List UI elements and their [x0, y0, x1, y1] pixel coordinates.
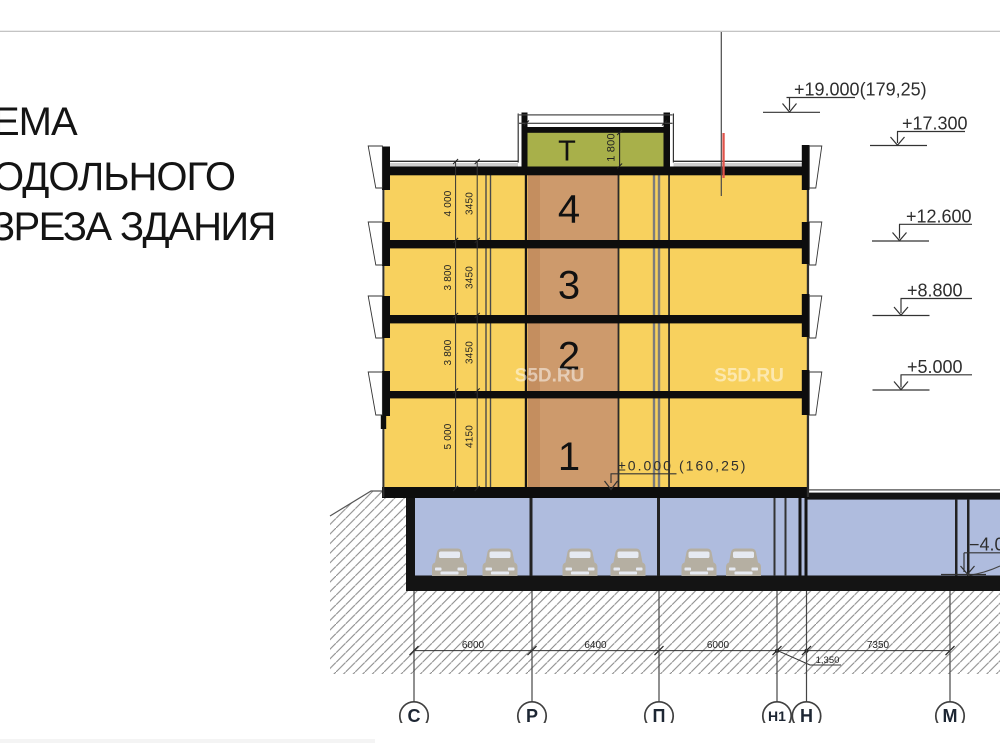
- svg-text:5 000: 5 000: [443, 423, 454, 449]
- svg-text:−4.000: −4.000: [969, 535, 1000, 555]
- svg-text:6000: 6000: [462, 640, 485, 651]
- svg-text:6000: 6000: [707, 640, 730, 651]
- svg-text:7350: 7350: [867, 640, 890, 651]
- svg-text:1 800: 1 800: [606, 133, 618, 162]
- svg-text:3: 3: [558, 264, 580, 308]
- svg-text:3 800: 3 800: [443, 264, 454, 290]
- svg-text:1: 1: [558, 435, 580, 479]
- svg-text:Т: Т: [558, 136, 576, 168]
- svg-text:3 800: 3 800: [443, 339, 454, 365]
- svg-text:Н1: Н1: [768, 708, 786, 724]
- svg-text:ЕМА: ЕМА: [0, 100, 78, 144]
- svg-text:4150: 4150: [465, 425, 476, 448]
- svg-text:4: 4: [558, 188, 580, 232]
- svg-text:6400: 6400: [584, 640, 607, 651]
- svg-text:+19.000(179,25): +19.000(179,25): [794, 80, 927, 100]
- svg-text:S5D.RU: S5D.RU: [515, 366, 585, 387]
- svg-text:+8.800: +8.800: [907, 281, 963, 301]
- svg-text:ОДОЛЬНОГО: ОДОЛЬНОГО: [0, 155, 235, 199]
- svg-text:3450: 3450: [465, 341, 476, 364]
- svg-text:±0.000 (160,25): ±0.000 (160,25): [618, 458, 748, 474]
- svg-text:3450: 3450: [465, 192, 476, 215]
- svg-text:4 000: 4 000: [443, 190, 454, 216]
- svg-text:+17.300: +17.300: [902, 114, 968, 134]
- svg-text:S5D.RU: S5D.RU: [714, 366, 784, 387]
- svg-text:ЗРЕЗА ЗДАНИЯ: ЗРЕЗА ЗДАНИЯ: [0, 205, 275, 249]
- svg-text:3450: 3450: [465, 266, 476, 289]
- svg-text:1,350: 1,350: [816, 655, 840, 666]
- svg-text:+5.000: +5.000: [907, 357, 963, 377]
- svg-text:+12.600: +12.600: [906, 207, 972, 227]
